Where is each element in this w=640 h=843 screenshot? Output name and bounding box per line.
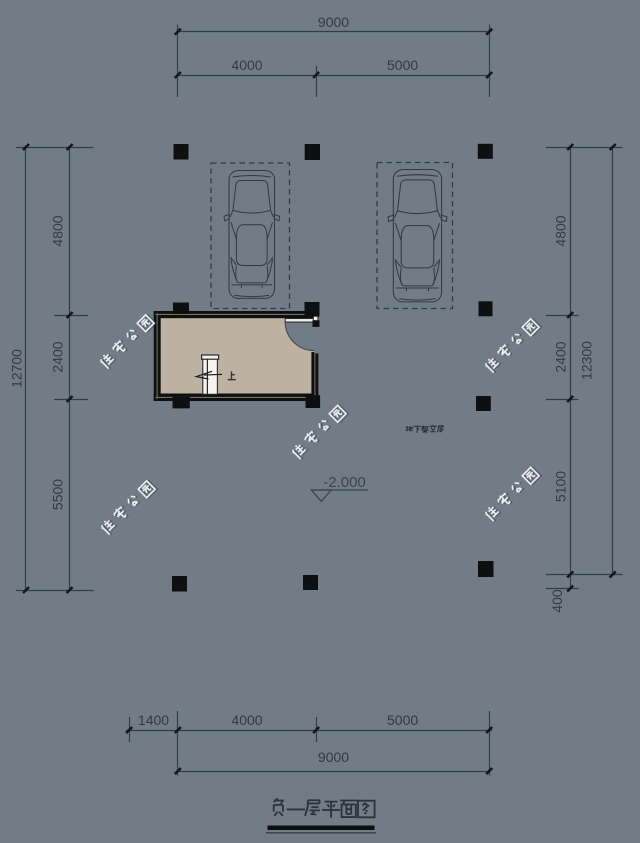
svg-text:400: 400: [549, 589, 565, 613]
svg-text:2400: 2400: [50, 341, 66, 372]
svg-text:5100: 5100: [553, 471, 569, 502]
svg-text:9000: 9000: [318, 14, 349, 30]
svg-text:5500: 5500: [50, 479, 66, 510]
svg-text:5000: 5000: [387, 712, 418, 728]
svg-text:12700: 12700: [9, 349, 25, 388]
svg-text:5000: 5000: [387, 57, 418, 73]
svg-text:4800: 4800: [50, 215, 66, 246]
svg-text:4000: 4000: [231, 57, 262, 73]
svg-text:9000: 9000: [318, 749, 349, 765]
svg-text:4800: 4800: [553, 215, 569, 246]
svg-text:2400: 2400: [553, 341, 569, 372]
svg-text:-2.000: -2.000: [323, 474, 366, 491]
svg-text:12300: 12300: [579, 341, 595, 380]
svg-text:4000: 4000: [231, 712, 262, 728]
svg-text:1400: 1400: [138, 712, 169, 728]
